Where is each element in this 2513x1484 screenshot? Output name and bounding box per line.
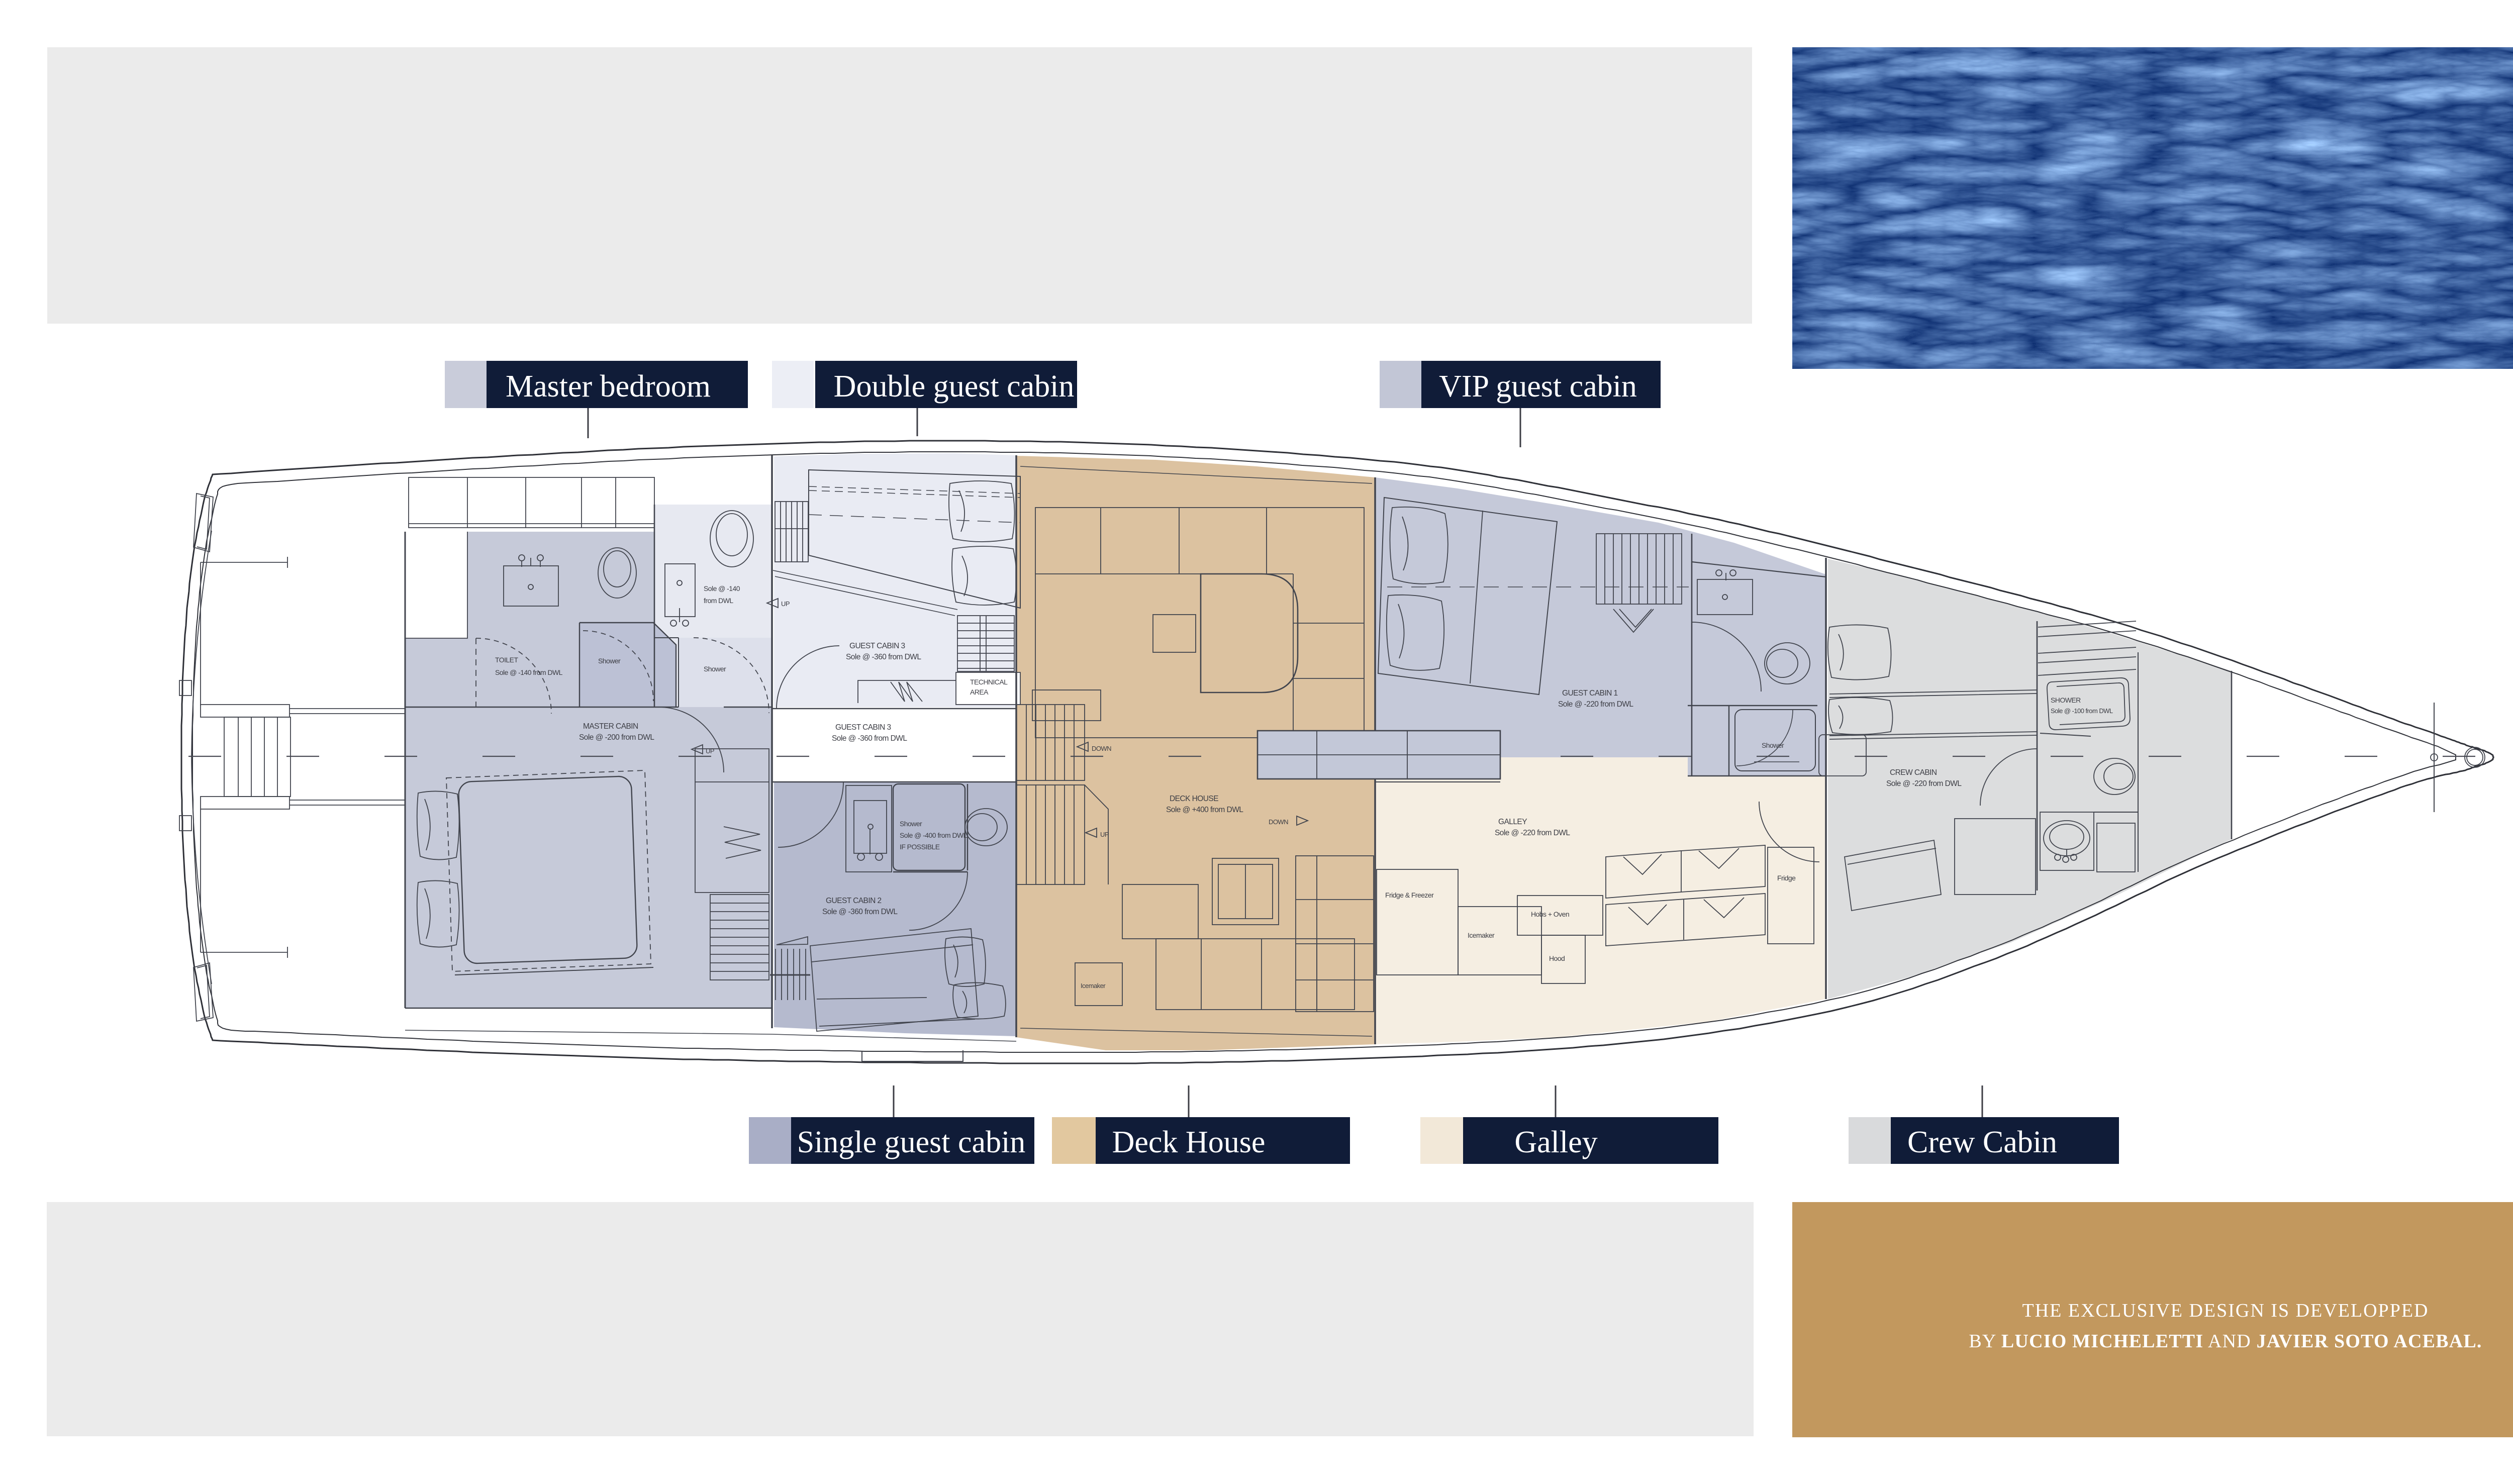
svg-text:IF POSSIBLE: IF POSSIBLE	[900, 843, 940, 851]
svg-text:CREW CABIN: CREW CABIN	[1890, 768, 1937, 777]
svg-text:DOWN: DOWN	[1092, 745, 1111, 752]
svg-text:GUEST CABIN 2: GUEST CABIN 2	[826, 897, 882, 905]
svg-text:VIP guest cabin: VIP guest cabin	[1439, 369, 1637, 404]
svg-text:Sole @ -220 from DWL: Sole @ -220 from DWL	[1886, 779, 1962, 788]
svg-text:Fridge: Fridge	[1777, 874, 1796, 882]
svg-text:Crew Cabin: Crew Cabin	[1907, 1125, 2057, 1159]
svg-text:Single guest cabin: Single guest cabin	[797, 1125, 1026, 1159]
svg-text:Sole @ -220 from DWL: Sole @ -220 from DWL	[1495, 829, 1570, 837]
svg-text:Sole @ -400 from DWL: Sole @ -400 from DWL	[900, 831, 968, 839]
svg-text:Sole @ +400 from DWL: Sole @ +400 from DWL	[1166, 806, 1243, 814]
svg-text:Sole @ -360 from DWL: Sole @ -360 from DWL	[822, 908, 898, 916]
svg-text:from DWL: from DWL	[704, 597, 733, 605]
svg-text:DECK HOUSE: DECK HOUSE	[1170, 795, 1218, 803]
svg-text:Shower: Shower	[1762, 741, 1784, 749]
svg-text:Hobs + Oven: Hobs + Oven	[1531, 910, 1569, 918]
svg-text:GALLEY: GALLEY	[1498, 818, 1527, 826]
svg-text:GUEST CABIN 3: GUEST CABIN 3	[835, 723, 891, 732]
svg-text:GUEST CABIN 1: GUEST CABIN 1	[1562, 689, 1618, 698]
svg-text:TECHNICAL: TECHNICAL	[970, 678, 1008, 686]
svg-text:Sole @ -100 from DWL: Sole @ -100 from DWL	[2051, 707, 2113, 715]
svg-text:Sole @ -140 from DWL: Sole @ -140 from DWL	[495, 668, 563, 676]
svg-text:UP: UP	[781, 600, 790, 608]
svg-text:Galley: Galley	[1514, 1125, 1597, 1159]
svg-text:Sole @ -220 from DWL: Sole @ -220 from DWL	[1558, 700, 1633, 709]
svg-text:Double guest cabin: Double guest cabin	[834, 369, 1075, 404]
svg-text:Deck House: Deck House	[1112, 1125, 1266, 1159]
svg-text:SHOWER: SHOWER	[2051, 696, 2081, 704]
svg-text:AREA: AREA	[970, 688, 989, 696]
svg-text:Icemaker: Icemaker	[1081, 982, 1106, 990]
svg-text:Shower: Shower	[704, 665, 726, 673]
svg-text:Shower: Shower	[900, 820, 922, 828]
svg-text:BY LUCIO MICHELETTI AND JAVIER: BY LUCIO MICHELETTI AND JAVIER SOTO ACEB…	[1969, 1331, 2482, 1352]
svg-text:THE EXCLUSIVE DESIGN IS DEVELO: THE EXCLUSIVE DESIGN IS DEVELOPPED	[2022, 1300, 2429, 1321]
svg-text:Master bedroom: Master bedroom	[506, 369, 711, 404]
svg-text:Fridge & Freezer: Fridge & Freezer	[1385, 891, 1434, 899]
svg-text:Shower: Shower	[598, 657, 621, 665]
svg-text:MASTER CABIN: MASTER CABIN	[583, 722, 638, 731]
svg-text:Sole @ -200 from DWL: Sole @ -200 from DWL	[579, 733, 654, 742]
svg-text:GUEST CABIN 3: GUEST CABIN 3	[849, 642, 905, 650]
svg-text:Hood: Hood	[1549, 954, 1565, 962]
svg-text:Sole @ -140: Sole @ -140	[704, 584, 740, 592]
svg-text:UP: UP	[706, 747, 714, 755]
svg-text:Sole @ -360 from DWL: Sole @ -360 from DWL	[832, 734, 907, 743]
svg-text:TOILET: TOILET	[495, 656, 518, 664]
svg-text:Icemaker: Icemaker	[1468, 931, 1495, 939]
svg-text:UP: UP	[1100, 831, 1109, 838]
svg-text:DOWN: DOWN	[1269, 818, 1288, 826]
svg-text:Sole @ -360 from DWL: Sole @ -360 from DWL	[846, 653, 921, 661]
